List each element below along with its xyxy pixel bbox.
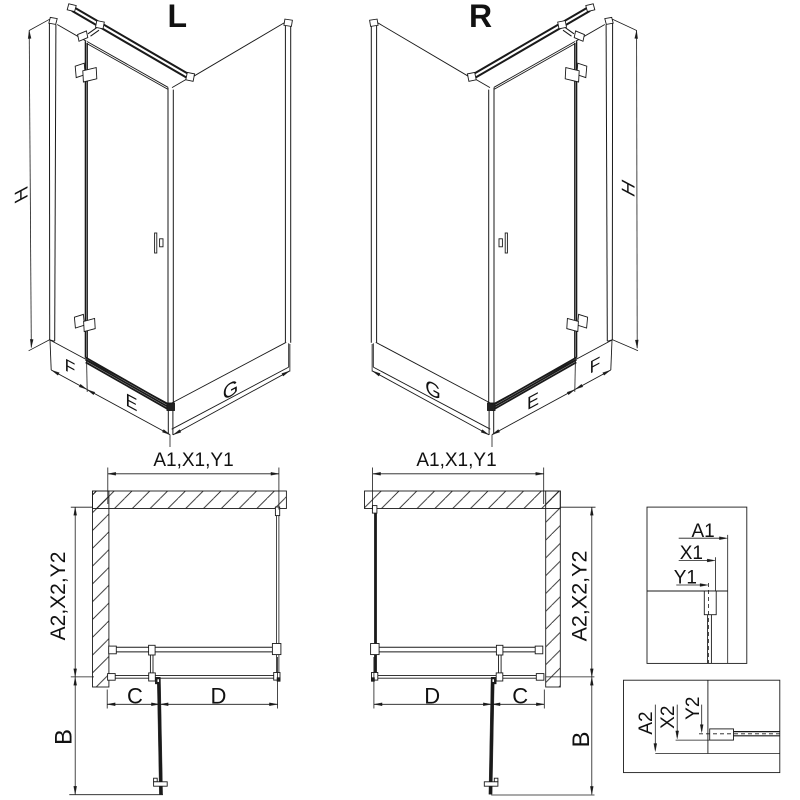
svg-text:R: R	[469, 0, 492, 34]
svg-text:E: E	[125, 390, 137, 416]
svg-text:F: F	[590, 352, 601, 377]
svg-text:D: D	[211, 684, 227, 709]
svg-text:H: H	[619, 176, 640, 200]
svg-text:A1,X1,Y1: A1,X1,Y1	[153, 450, 233, 471]
svg-text:B: B	[51, 729, 78, 745]
svg-text:A2: A2	[636, 711, 657, 734]
svg-text:A2,X2,Y2: A2,X2,Y2	[568, 551, 592, 642]
svg-text:A1: A1	[692, 521, 715, 542]
svg-text:X2: X2	[658, 706, 679, 729]
svg-text:Y2: Y2	[683, 697, 704, 720]
svg-text:D: D	[424, 684, 440, 709]
svg-text:C: C	[512, 684, 528, 709]
svg-text:B: B	[568, 731, 595, 747]
svg-text:A1,X1,Y1: A1,X1,Y1	[416, 450, 496, 471]
svg-text:C: C	[127, 684, 143, 709]
svg-text:Y1: Y1	[674, 568, 697, 589]
svg-text:F: F	[65, 354, 76, 379]
svg-text:H: H	[12, 182, 33, 206]
svg-text:A2,X2,Y2: A2,X2,Y2	[47, 552, 70, 641]
svg-text:L: L	[168, 0, 188, 34]
svg-text:X1: X1	[680, 543, 703, 564]
svg-text:E: E	[527, 389, 539, 415]
